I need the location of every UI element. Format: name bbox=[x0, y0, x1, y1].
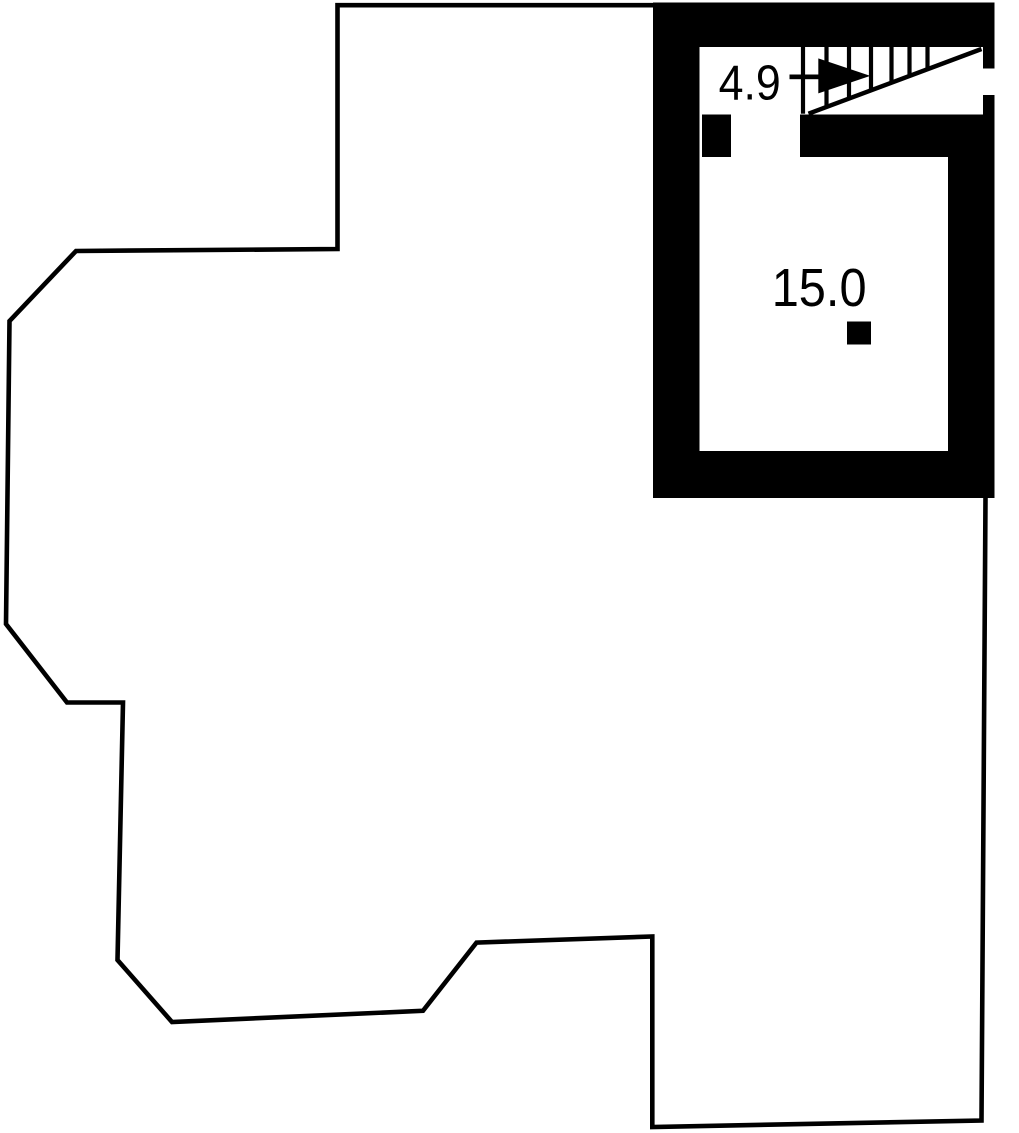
svg-text:4.9: 4.9 bbox=[719, 56, 781, 110]
svg-text:15.0: 15.0 bbox=[772, 258, 867, 318]
